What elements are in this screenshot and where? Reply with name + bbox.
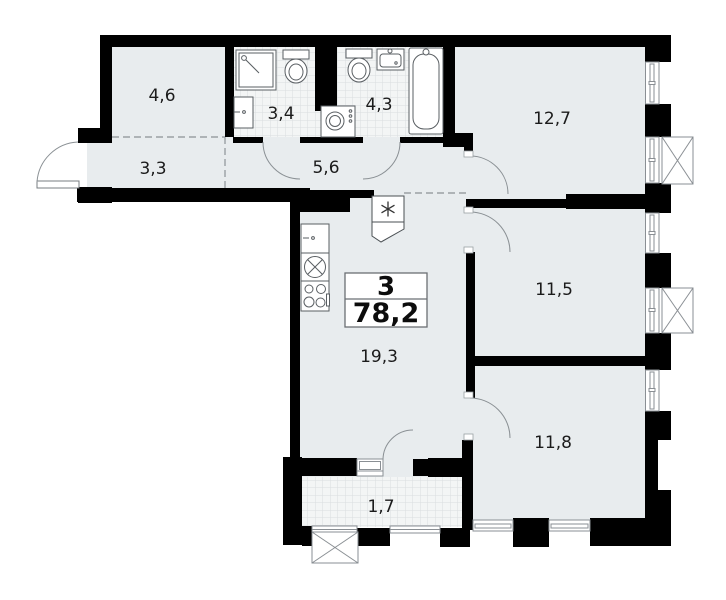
window-bedroom-top-1 xyxy=(646,62,660,104)
window-bedroom-middle-1 xyxy=(646,213,660,253)
room-area-wardrobe: 4,6 xyxy=(148,86,175,106)
window-bedroom-bottom-right xyxy=(646,370,660,411)
room-area-balcony: 1,7 xyxy=(367,497,394,517)
room-area-bedroom-bottom: 11,8 xyxy=(534,433,572,453)
balcony-glazing-2 xyxy=(390,526,440,533)
floor-plan-svg: 4,6 3,4 4,3 12,7 3,3 5,6 11,5 19,3 11,8 … xyxy=(0,0,726,600)
room-area-bedroom-middle: 11,5 xyxy=(535,280,573,300)
room-area-hall-entry: 3,3 xyxy=(139,159,166,179)
apartment-total-area: 78,2 xyxy=(353,298,420,329)
kitchen-sink-basin xyxy=(301,253,329,281)
kitchen-counter-sink xyxy=(301,224,329,253)
entrance-opening xyxy=(78,143,87,187)
window-bedroom-middle-2 xyxy=(646,288,660,333)
kitchen-block xyxy=(301,224,330,311)
room-area-kitchen-living: 19,3 xyxy=(360,347,398,367)
room-area-corridor: 5,6 xyxy=(312,158,339,178)
shower-cabin xyxy=(236,50,276,90)
ac-unit-bedroom-top xyxy=(662,137,693,184)
apartment-info-box: 3 78,2 xyxy=(345,272,427,329)
stove xyxy=(301,281,330,311)
entrance-door xyxy=(37,142,79,188)
toilet-small-bath xyxy=(283,50,309,83)
ac-unit-balcony xyxy=(312,532,358,563)
floor-plan-page: 4,6 3,4 4,3 12,7 3,3 5,6 11,5 19,3 11,8 … xyxy=(0,0,726,600)
window-kitchen-balcony xyxy=(357,459,383,476)
outside-patch xyxy=(87,47,100,131)
room-area-bathroom-large: 4,3 xyxy=(365,95,392,115)
sink-small-bath xyxy=(234,97,253,128)
window-bedroom-bottom-south-1 xyxy=(473,520,513,531)
bathtub xyxy=(409,48,443,134)
room-area-bathroom-small: 3,4 xyxy=(267,104,294,124)
room-area-bedroom-top: 12,7 xyxy=(533,109,571,129)
window-bedroom-bottom-south-2 xyxy=(549,520,590,531)
toilet-large-bath xyxy=(346,49,372,82)
ac-unit-bedroom-middle xyxy=(662,288,693,333)
window-bedroom-top-2 xyxy=(646,137,660,183)
washing-machine xyxy=(321,106,355,137)
sink-large-bath xyxy=(377,49,404,70)
